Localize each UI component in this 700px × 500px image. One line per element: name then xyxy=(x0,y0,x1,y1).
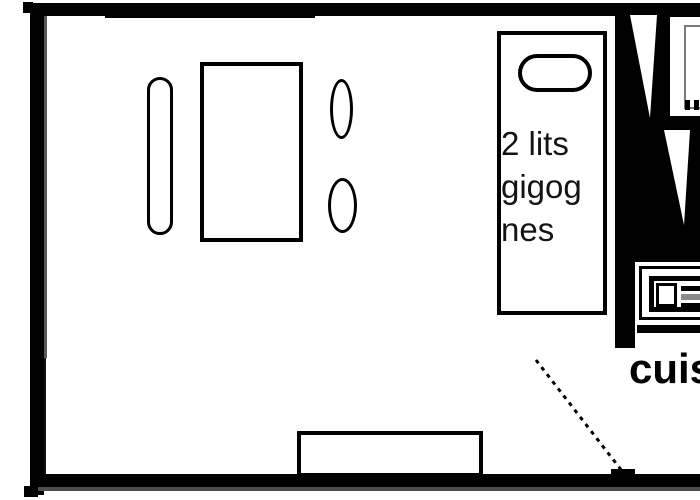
door-hinge-tick xyxy=(611,469,635,477)
window-seat xyxy=(297,431,483,477)
bed-label: 2 lits gigog nes xyxy=(501,122,603,251)
wall-left-inner-line xyxy=(44,358,46,474)
appliance-inner-panel xyxy=(684,25,700,109)
chair-top xyxy=(330,79,353,139)
wall-left-inner-shadow xyxy=(44,16,47,358)
door-swing-line xyxy=(530,354,630,479)
bed-pillow xyxy=(518,54,592,92)
appliance-foot-right xyxy=(694,100,699,110)
chair-bottom xyxy=(328,178,357,233)
appliance-foot-left xyxy=(685,100,690,110)
counter-burner-stripe-bottom xyxy=(681,303,700,308)
wall-top-thick-segment xyxy=(105,14,315,18)
bench xyxy=(147,77,173,235)
kitchen-label: cuis xyxy=(629,348,700,390)
bed-label-line-2: gigog xyxy=(501,165,603,208)
wall-bottom-shadow-line xyxy=(30,487,700,491)
stairs-block-lower xyxy=(615,262,635,348)
counter-front-edge xyxy=(637,325,700,333)
wall-bottom-left-step xyxy=(24,486,38,497)
counter-burner-stripe-middle xyxy=(681,294,700,300)
bed-label-line-3: nes xyxy=(501,208,603,251)
bed-label-line-1: 2 lits xyxy=(501,122,603,165)
wall-left xyxy=(30,3,44,495)
dining-table xyxy=(200,62,303,242)
floor-plan: cuis 2 lits gigog nes xyxy=(0,0,700,500)
sink-icon xyxy=(656,283,677,307)
counter-burner-stripe-top xyxy=(681,286,700,291)
